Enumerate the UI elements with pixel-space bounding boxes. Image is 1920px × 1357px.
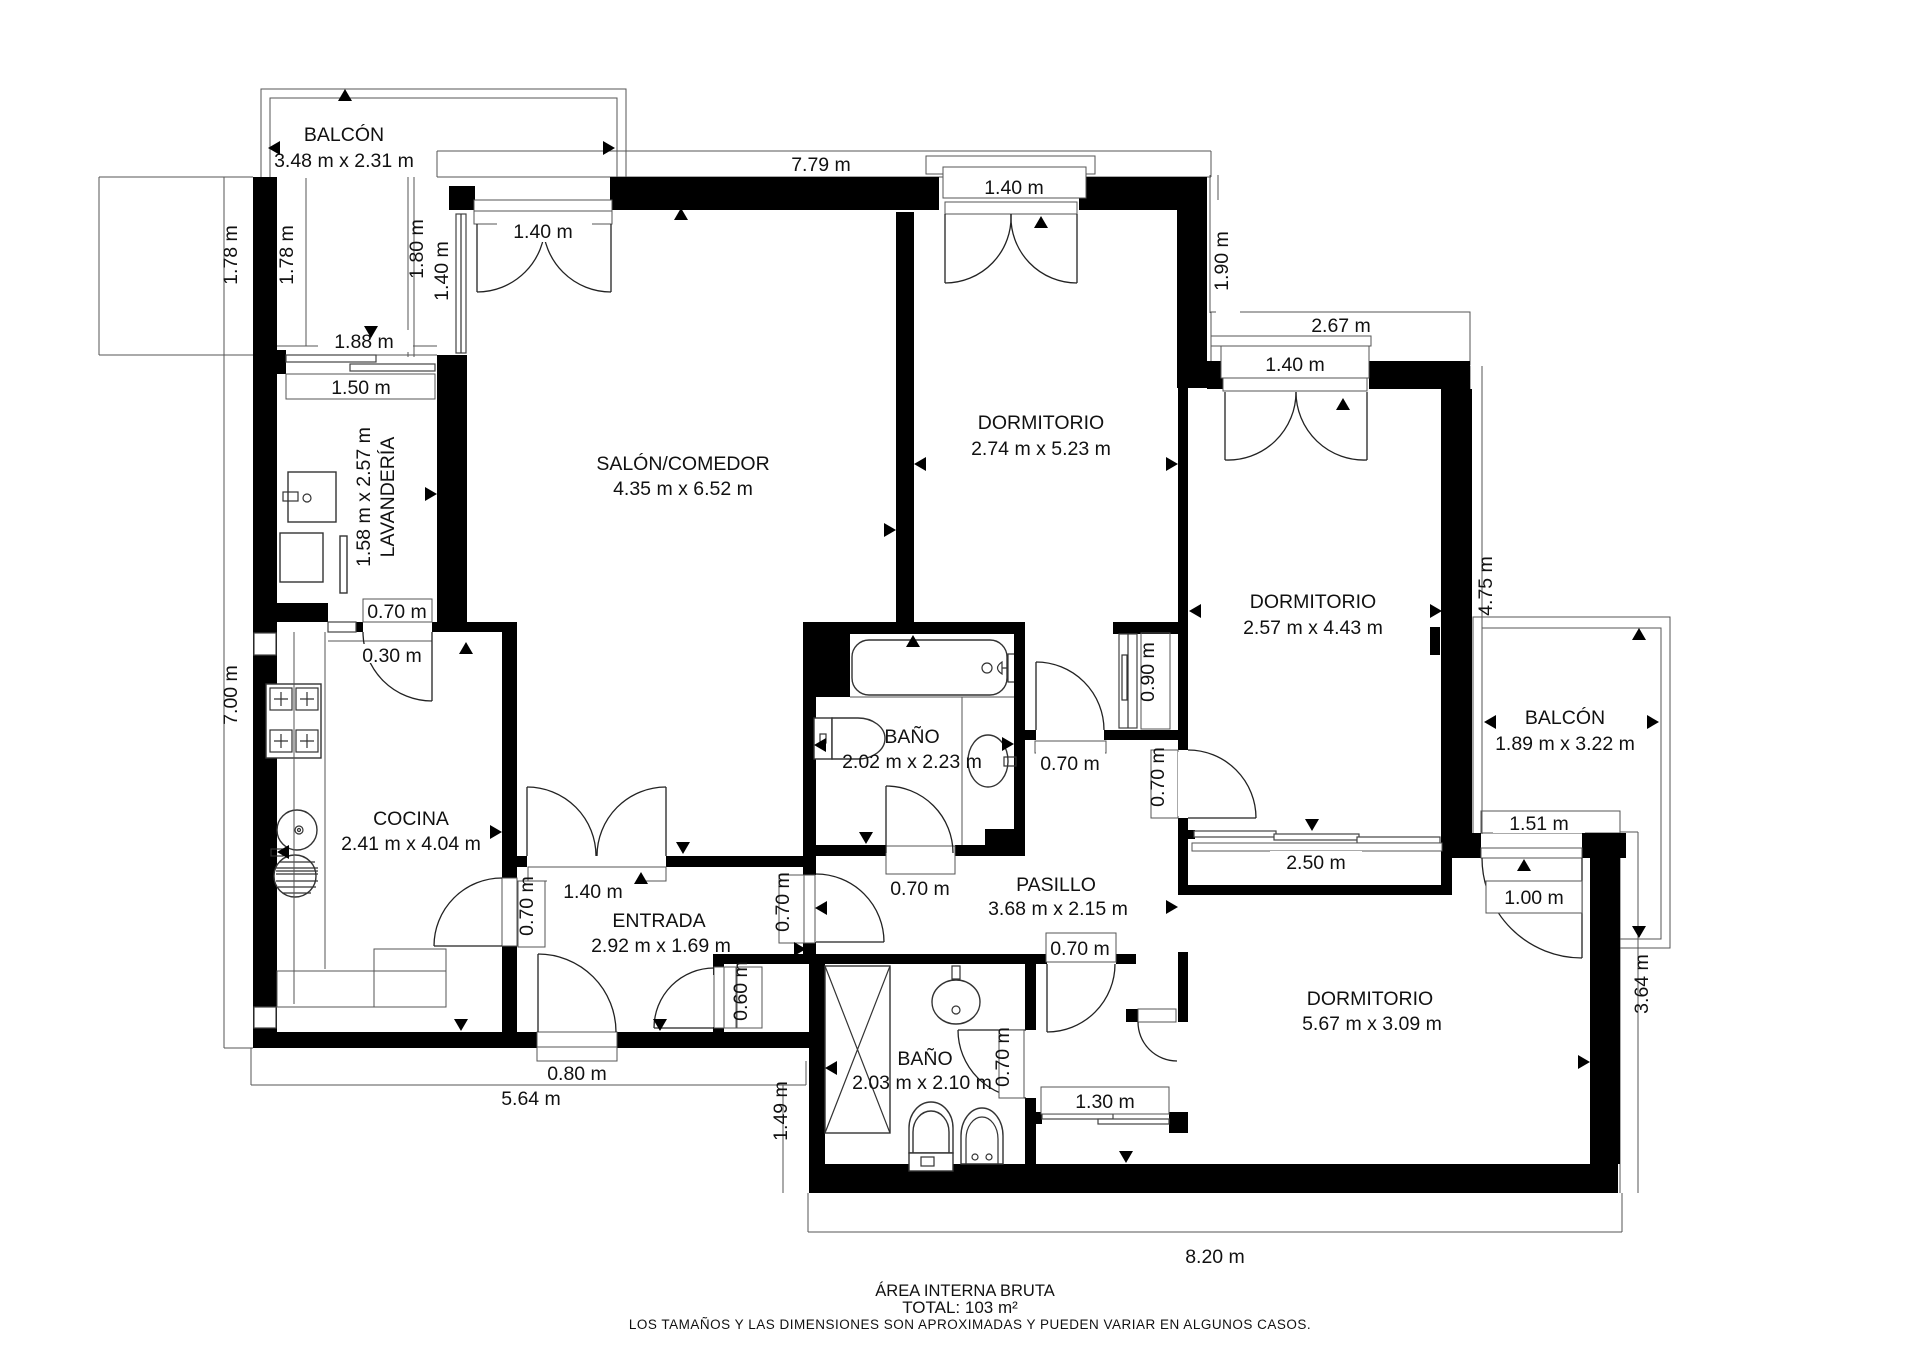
svg-text:0.70 m: 0.70 m <box>367 601 427 623</box>
svg-text:SALÓN/COMEDOR: SALÓN/COMEDOR <box>596 452 769 475</box>
svg-text:LOS TAMAÑOS Y LAS DIMENSIONES: LOS TAMAÑOS Y LAS DIMENSIONES SON APROXI… <box>629 1317 1311 1332</box>
svg-text:0.70 m: 0.70 m <box>992 1027 1014 1087</box>
svg-text:0.30 m: 0.30 m <box>362 645 422 667</box>
svg-text:0.70 m: 0.70 m <box>1040 753 1100 775</box>
svg-text:BALCÓN: BALCÓN <box>304 123 384 146</box>
svg-text:1.00 m: 1.00 m <box>1504 887 1564 909</box>
svg-text:LAVANDERÍA: LAVANDERÍA <box>376 437 399 558</box>
svg-text:3.68 m x 2.15 m: 3.68 m x 2.15 m <box>988 898 1128 920</box>
svg-text:0.70 m: 0.70 m <box>772 872 794 932</box>
svg-text:2.50 m: 2.50 m <box>1286 852 1346 874</box>
svg-text:4.35 m x 6.52 m: 4.35 m x 6.52 m <box>613 478 753 500</box>
svg-text:1.80 m: 1.80 m <box>406 219 428 279</box>
svg-text:0.70 m: 0.70 m <box>890 878 950 900</box>
svg-text:PASILLO: PASILLO <box>1016 874 1096 896</box>
svg-text:4.75 m: 4.75 m <box>1475 556 1497 616</box>
svg-text:1.49 m: 1.49 m <box>770 1081 792 1141</box>
svg-text:2.57 m x 4.43 m: 2.57 m x 4.43 m <box>1243 617 1383 639</box>
svg-text:1.78 m: 1.78 m <box>276 225 298 285</box>
svg-text:7.00 m: 7.00 m <box>220 665 242 725</box>
svg-text:5.64 m: 5.64 m <box>501 1088 561 1110</box>
svg-text:1.40 m: 1.40 m <box>984 177 1044 199</box>
svg-text:8.20 m: 8.20 m <box>1185 1246 1245 1268</box>
svg-text:BAÑO: BAÑO <box>897 1046 952 1070</box>
svg-text:BAÑO: BAÑO <box>884 724 939 748</box>
svg-text:1.30 m: 1.30 m <box>1075 1091 1135 1113</box>
svg-text:COCINA: COCINA <box>373 808 449 830</box>
svg-text:BALCÓN: BALCÓN <box>1525 706 1605 729</box>
svg-text:0.60 m: 0.60 m <box>730 961 752 1021</box>
svg-text:2.02 m x 2.23 m: 2.02 m x 2.23 m <box>842 751 982 773</box>
svg-text:0.70 m: 0.70 m <box>1147 747 1169 807</box>
svg-text:DORMITORIO: DORMITORIO <box>1250 591 1376 613</box>
svg-text:1.40 m: 1.40 m <box>513 221 573 243</box>
svg-text:2.41 m x 4.04 m: 2.41 m x 4.04 m <box>341 833 481 855</box>
svg-text:1.50 m: 1.50 m <box>331 377 391 399</box>
svg-text:1.90 m: 1.90 m <box>1211 231 1233 291</box>
svg-text:DORMITORIO: DORMITORIO <box>1307 988 1433 1010</box>
svg-text:ENTRADA: ENTRADA <box>612 910 705 932</box>
svg-text:5.67 m x 3.09 m: 5.67 m x 3.09 m <box>1302 1013 1442 1035</box>
svg-text:1.40 m: 1.40 m <box>1265 354 1325 376</box>
svg-text:2.92 m x 1.69 m: 2.92 m x 1.69 m <box>591 935 731 957</box>
svg-text:1.40 m: 1.40 m <box>431 241 453 301</box>
svg-text:1.51 m: 1.51 m <box>1509 813 1569 835</box>
svg-text:1.89 m x 3.22 m: 1.89 m x 3.22 m <box>1495 733 1635 755</box>
svg-text:DORMITORIO: DORMITORIO <box>978 412 1104 434</box>
svg-text:2.67 m: 2.67 m <box>1311 315 1371 337</box>
svg-text:1.58 m x 2.57 m: 1.58 m x 2.57 m <box>353 427 375 567</box>
svg-text:1.40 m: 1.40 m <box>563 881 623 903</box>
svg-text:2.74 m x 5.23 m: 2.74 m x 5.23 m <box>971 438 1111 460</box>
svg-text:7.79 m: 7.79 m <box>791 154 851 176</box>
svg-text:1.78 m: 1.78 m <box>220 225 242 285</box>
svg-text:0.80 m: 0.80 m <box>547 1063 607 1085</box>
svg-text:2.03 m x 2.10 m: 2.03 m x 2.10 m <box>852 1072 992 1094</box>
svg-text:0.70 m: 0.70 m <box>1050 938 1110 960</box>
svg-text:0.70 m: 0.70 m <box>516 876 538 936</box>
svg-text:3.48 m x 2.31 m: 3.48 m x 2.31 m <box>274 150 414 172</box>
svg-text:1.88 m: 1.88 m <box>334 331 394 353</box>
svg-text:0.90 m: 0.90 m <box>1137 642 1159 702</box>
svg-text:3.64 m: 3.64 m <box>1631 954 1653 1014</box>
svg-text:TOTAL: 103 m²: TOTAL: 103 m² <box>902 1298 1018 1317</box>
